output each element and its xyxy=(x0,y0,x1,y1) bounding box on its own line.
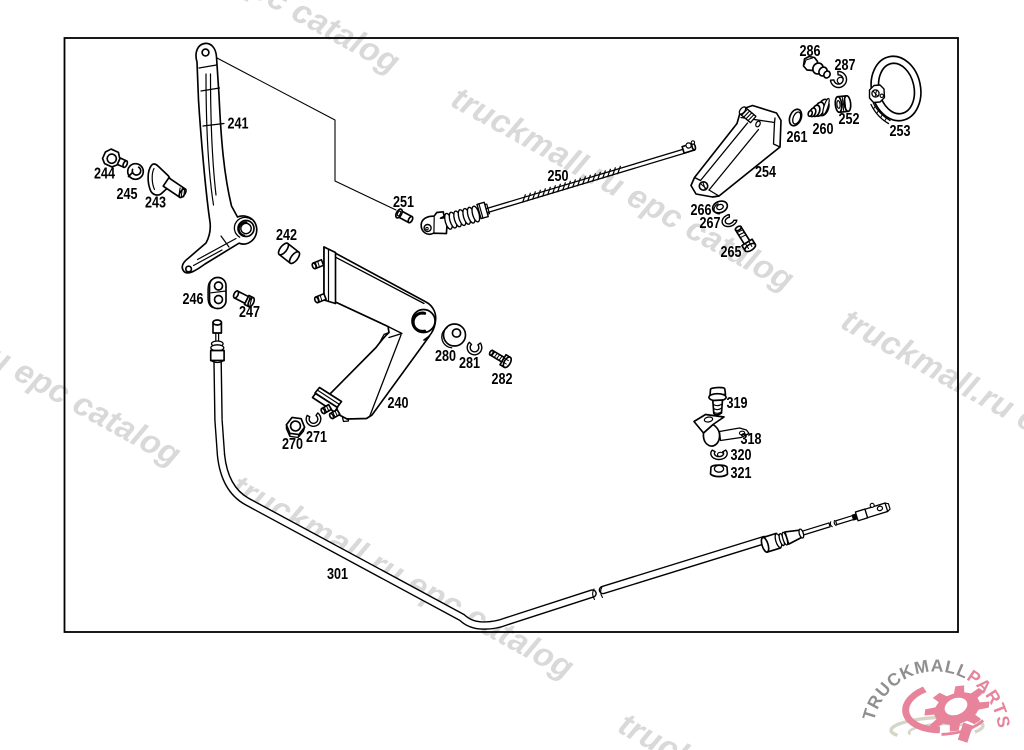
svg-text:320: 320 xyxy=(731,447,752,464)
svg-text:254: 254 xyxy=(755,164,776,181)
svg-text:318: 318 xyxy=(741,431,762,448)
svg-text:267: 267 xyxy=(700,215,721,232)
svg-text:245: 245 xyxy=(117,186,138,203)
svg-text:247: 247 xyxy=(239,304,260,321)
svg-text:253: 253 xyxy=(890,123,911,140)
svg-text:301: 301 xyxy=(327,566,348,583)
svg-text:251: 251 xyxy=(393,194,414,211)
svg-text:282: 282 xyxy=(492,371,513,388)
svg-text:truckmall.ru epc catalog: truckmall.ru epc catalog xyxy=(226,467,581,686)
svg-text:280: 280 xyxy=(435,348,456,365)
svg-text:260: 260 xyxy=(813,121,834,138)
svg-text:321: 321 xyxy=(731,465,752,482)
svg-text:truckmall.ru epc catalog: truckmall.ru epc catalog xyxy=(0,254,187,473)
svg-text:241: 241 xyxy=(228,116,249,133)
svg-text:319: 319 xyxy=(727,395,748,412)
svg-text:270: 270 xyxy=(282,436,303,453)
svg-text:240: 240 xyxy=(388,395,409,412)
svg-text:271: 271 xyxy=(306,429,327,446)
svg-text:242: 242 xyxy=(276,227,297,244)
svg-text:246: 246 xyxy=(183,291,204,308)
svg-text:287: 287 xyxy=(835,57,856,74)
svg-text:truckmall.ru epc catalog: truckmall.ru epc catalog xyxy=(836,301,1024,520)
svg-text:265: 265 xyxy=(721,244,742,261)
svg-text:252: 252 xyxy=(839,111,860,128)
svg-text:250: 250 xyxy=(548,168,569,185)
svg-text:truckmall.ru epc catalog: truckmall.ru epc catalog xyxy=(52,0,407,80)
svg-text:281: 281 xyxy=(459,355,480,372)
svg-text:244: 244 xyxy=(94,166,115,183)
svg-text:243: 243 xyxy=(145,195,166,212)
svg-text:286: 286 xyxy=(800,43,821,60)
svg-text:261: 261 xyxy=(787,129,808,146)
